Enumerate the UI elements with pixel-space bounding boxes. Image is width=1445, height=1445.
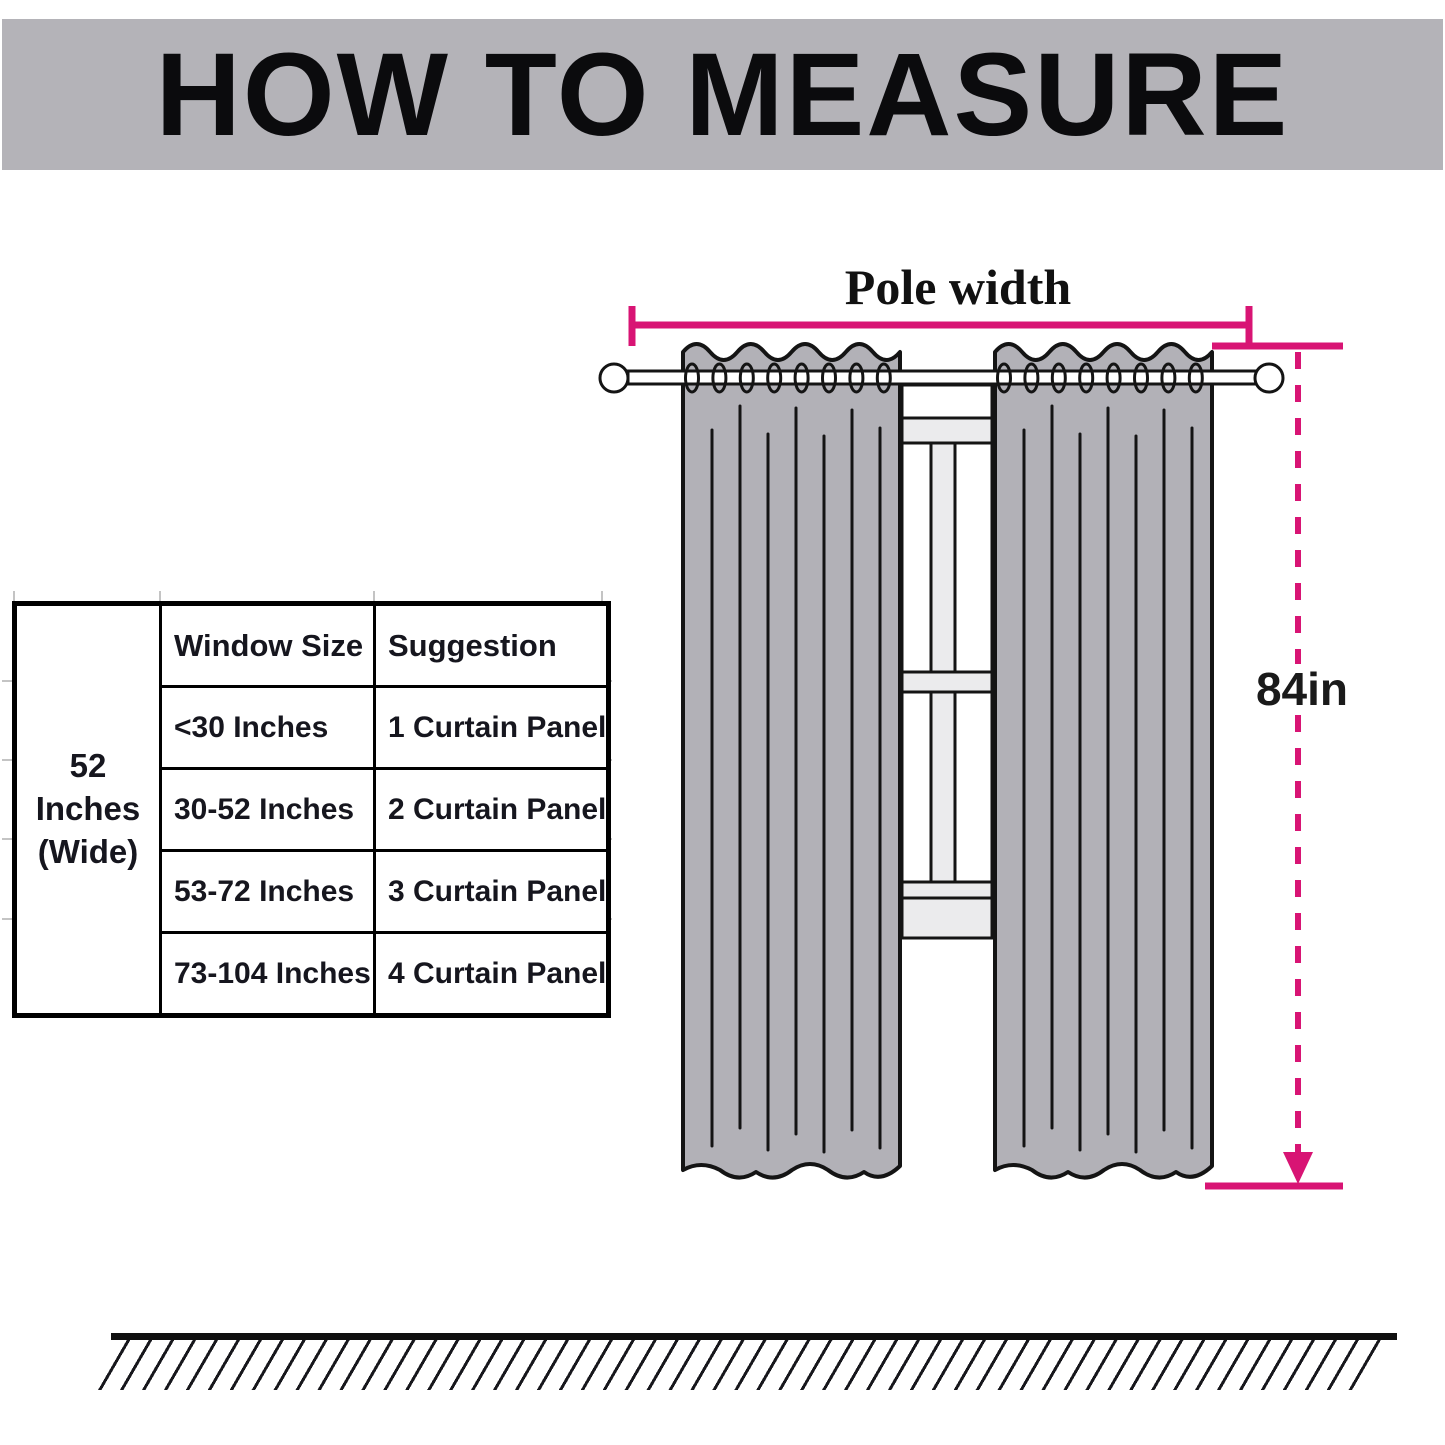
curtain-rod xyxy=(628,371,1260,384)
window-center-mullion xyxy=(931,443,955,882)
table-header-window-size: Window Size xyxy=(161,604,375,687)
table-header-suggestion: Suggestion xyxy=(375,604,609,687)
table-header-row: 52 Inches (Wide) Window Size Suggestion xyxy=(15,604,609,687)
window-sill xyxy=(902,898,992,938)
window xyxy=(902,385,992,938)
rod-finial-right xyxy=(1255,364,1283,392)
floor-line xyxy=(111,1333,1397,1340)
size-suggestion-table: 52 Inches (Wide) Window Size Suggestion … xyxy=(12,601,611,1018)
window-crossbar-lower xyxy=(902,882,992,898)
table-cell-window-size: 73-104 Inches xyxy=(161,933,375,1016)
floor-hatching xyxy=(83,1340,1397,1390)
pole-width-label: Pole width xyxy=(845,262,1071,312)
curtain-length-measure xyxy=(1205,346,1343,1186)
curtain-length-label: 84in xyxy=(1246,664,1358,714)
window-crossbar-upper xyxy=(902,672,992,692)
table-cell-width-note: 52 Inches (Wide) xyxy=(15,604,161,1016)
curtain-fabric xyxy=(683,344,900,1178)
window-top-frame xyxy=(902,385,992,418)
table-cell-window-size: <30 Inches xyxy=(161,687,375,769)
rod-finial-left xyxy=(600,364,628,392)
window-top-trim xyxy=(902,418,992,443)
table-cell-suggestion: 1 Curtain Panel xyxy=(375,687,609,769)
down-arrowhead-icon xyxy=(1283,1152,1313,1184)
table-cell-suggestion: 2 Curtain Panel xyxy=(375,769,609,851)
curtain-panel-right xyxy=(995,344,1212,1178)
table-cell-window-size: 30-52 Inches xyxy=(161,769,375,851)
table-cell-suggestion: 3 Curtain Panel xyxy=(375,851,609,933)
table-cell-window-size: 53-72 Inches xyxy=(161,851,375,933)
curtain-panel-left xyxy=(683,344,900,1178)
table-cell-suggestion: 4 Curtain Panel xyxy=(375,933,609,1016)
